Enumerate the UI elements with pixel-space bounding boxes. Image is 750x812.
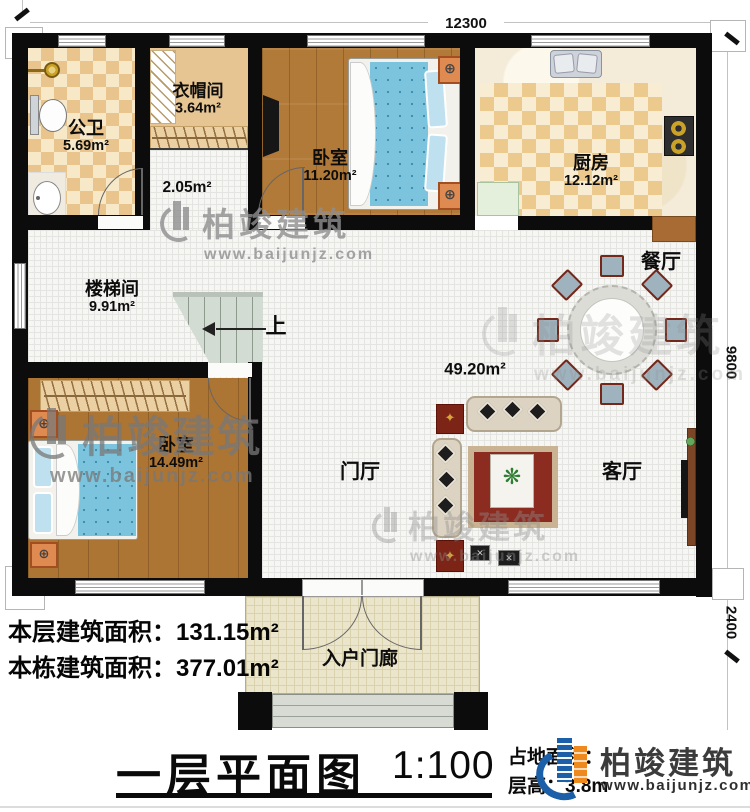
dining-chair [600, 255, 624, 277]
porch-floor [245, 596, 480, 694]
wall-cloakroom-hall-divider [150, 148, 248, 150]
room-name: 卧室 [303, 148, 356, 168]
room-area: 3.64m² [173, 100, 224, 116]
brand-url: www.baijunjz.com [601, 777, 750, 794]
kitchen-sink-basin-2 [576, 53, 598, 74]
info-line-building-area: 本栋建筑面积：377.01m² [8, 648, 279, 683]
plant-icon: ❋ [498, 464, 526, 490]
room-name: 客厅 [602, 461, 642, 483]
door-leaf-bedroom-left [249, 378, 251, 422]
room-name: 餐厅 [641, 251, 681, 273]
room-label-cloakroom: 衣帽间 3.64m² [173, 81, 224, 116]
title-underline [116, 793, 492, 798]
room-label-stairwell: 楼梯间 9.91m² [85, 279, 139, 315]
info-label: 本层建筑面积： [8, 619, 176, 646]
nightstand-ornament-icon: ⊕ [34, 415, 54, 432]
dining-table-top [580, 298, 644, 362]
window-top-bathroom [58, 35, 106, 47]
room-label-kitchen: 厨房 12.12m² [564, 153, 618, 189]
room-area-open: 49.20m² [444, 361, 505, 380]
dim-line-top [30, 22, 736, 23]
side-table-star-icon: ✦ [440, 410, 460, 426]
dining-chair [600, 383, 624, 405]
stairs-up-label: 上 [266, 310, 287, 340]
window-left-stairwell [14, 263, 26, 329]
room-area-hall: 2.05m² [162, 179, 211, 197]
room-label-foyer: 门厅 [340, 461, 380, 483]
stairs-arrow-icon [202, 322, 215, 336]
nightstand-ornament-icon: ⊕ [441, 60, 459, 77]
wardrobe-dark [263, 95, 279, 157]
room-name: 入户门廊 [322, 648, 398, 669]
window-top-bedroom [307, 35, 425, 47]
shower-head-icon [44, 62, 60, 78]
info-line-floor-area: 本层建筑面积：131.15m² [8, 612, 279, 647]
entry-door-seam [361, 579, 363, 595]
wall-kitchen-bottom [518, 216, 652, 230]
room-label-porch: 入户门廊 [322, 648, 398, 669]
door-opening-bathroom [98, 216, 143, 229]
burner-2 [671, 139, 686, 154]
wall-outer-right [696, 33, 712, 597]
room-name: 门厅 [340, 461, 380, 483]
porch-steps [272, 694, 454, 728]
bed-mattress-left [78, 444, 136, 536]
porch-pier-left [238, 692, 272, 730]
axis-tick-icon [14, 8, 30, 22]
kitchen-sink-basin-1 [553, 53, 575, 74]
room-label-bedroom-left: 卧室 14.49m² [149, 435, 203, 471]
wardrobe-rail-bar [44, 395, 186, 397]
kitchen-bar-counter [652, 216, 696, 242]
bed-mattress-top [370, 62, 428, 206]
entry-door-leaf-left [302, 596, 304, 650]
room-area: 11.20m² [303, 168, 356, 184]
room-label-living: 客厅 [602, 461, 642, 483]
room-name: 厨房 [564, 153, 618, 173]
room-area: 14.49m² [149, 455, 203, 471]
logo-building-accent-icon [574, 746, 587, 783]
window-top-cloakroom [169, 35, 225, 47]
pillow-left-1 [33, 446, 53, 488]
stairs-top-edge [173, 292, 263, 297]
window-bottom-living [508, 580, 660, 594]
dining-chair [537, 318, 559, 342]
room-name: 楼梯间 [85, 279, 139, 299]
wall-stairwell-bottom [12, 362, 208, 378]
door-opening-bedroom-top [258, 216, 305, 229]
room-name: 衣帽间 [173, 81, 224, 100]
floor-plan-sheet: 上 [0, 0, 750, 812]
nightstand-ornament-icon: ⊕ [441, 186, 459, 203]
dim-right-main: 9800 [723, 335, 740, 391]
brand-logo: 柏竣建筑 www.baijunjz.com [534, 735, 746, 807]
cabinet-plant-icon [686, 437, 695, 446]
info-value: 131.15m² [176, 619, 279, 646]
dim-right-porch: 2400 [723, 595, 740, 651]
pillow-left-2 [33, 492, 53, 534]
porch-pier-right [454, 692, 488, 730]
room-label-dining: 餐厅 [641, 251, 681, 273]
room-name: 公卫 [63, 118, 109, 138]
dim-top-width: 12300 [428, 15, 504, 32]
cloakroom-rail-bar [152, 137, 246, 139]
nightstand-ornament-icon: ⊕ [34, 546, 54, 562]
stool-icon: ✕ [498, 550, 520, 566]
window-top-kitchen [531, 35, 650, 47]
window-bottom-bedroom [75, 580, 205, 594]
info-value: 377.01m² [176, 655, 279, 682]
door-opening-bedroom-left [208, 363, 252, 377]
entry-door-opening [302, 579, 424, 597]
wall-kitchen-left [460, 48, 475, 230]
room-name: 卧室 [149, 435, 203, 455]
room-area: 5.69m² [63, 138, 109, 154]
info-label: 本栋建筑面积： [8, 655, 176, 682]
room-label-bathroom: 公卫 5.69m² [63, 118, 109, 154]
room-area: 12.12m² [564, 173, 618, 189]
fridge-icon [477, 182, 519, 216]
logo-building-icon [557, 738, 572, 782]
door-leaf-bathroom [141, 168, 143, 215]
tv-icon [681, 460, 688, 518]
dining-chair [665, 318, 687, 342]
room-label-bedroom-top: 卧室 11.20m² [303, 148, 356, 184]
side-table-star-icon: ✦ [440, 548, 460, 564]
sheet-scale: 1:100 [392, 744, 495, 788]
stool-icon: ✕ [470, 545, 490, 561]
entry-door-leaf-right [420, 596, 422, 650]
sink-drain [36, 196, 40, 200]
stairs-arrow-line [216, 328, 266, 330]
burner-1 [671, 121, 686, 136]
room-area: 9.91m² [85, 299, 139, 315]
toilet-tank [30, 95, 39, 135]
